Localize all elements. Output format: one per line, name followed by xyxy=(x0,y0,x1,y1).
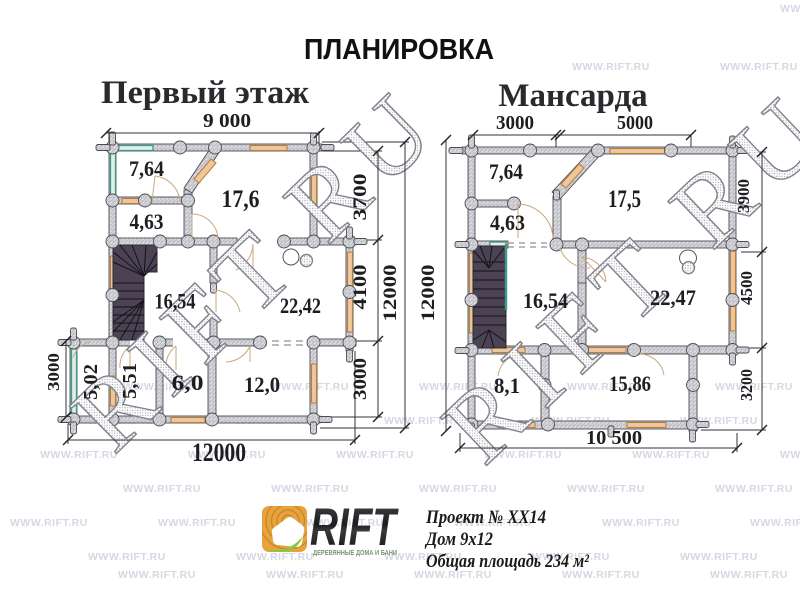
svg-text:3000: 3000 xyxy=(44,353,63,391)
svg-text:12000: 12000 xyxy=(192,438,246,467)
svg-text:WWW.RIFT.RU: WWW.RIFT.RU xyxy=(750,517,800,529)
svg-text:WWW.RIFT.RU: WWW.RIFT.RU xyxy=(40,449,118,461)
svg-text:5,51: 5,51 xyxy=(119,363,141,399)
svg-text:22,47: 22,47 xyxy=(650,285,696,310)
svg-text:ДЕРЕВЯННЫЕ ДОМА И БАНИ: ДЕРЕВЯННЫЕ ДОМА И БАНИ xyxy=(313,550,397,557)
svg-text:WWW.RIFT.RU: WWW.RIFT.RU xyxy=(123,483,201,495)
svg-text:16,54: 16,54 xyxy=(523,288,568,313)
svg-text:WWW.RIFT.RU: WWW.RIFT.RU xyxy=(271,483,349,495)
svg-text:WWW.RIFT.RU: WWW.RIFT.RU xyxy=(118,569,196,581)
svg-text:4,63: 4,63 xyxy=(490,210,525,235)
svg-text:16,54: 16,54 xyxy=(155,289,196,314)
svg-text:17,6: 17,6 xyxy=(222,186,260,213)
svg-text:12,0: 12,0 xyxy=(244,372,280,397)
svg-text:WWW.RIFT.RU: WWW.RIFT.RU xyxy=(780,449,800,461)
svg-text:WWW.RIFT.RU: WWW.RIFT.RU xyxy=(567,483,645,495)
svg-text:Проект № ХХ14: Проект № ХХ14 xyxy=(425,507,546,528)
svg-text:ПЛАНИРОВКА: ПЛАНИРОВКА xyxy=(304,34,494,66)
svg-text:3200: 3200 xyxy=(737,369,756,401)
svg-text:3000: 3000 xyxy=(350,358,371,400)
svg-text:WWW.RIFT.RU: WWW.RIFT.RU xyxy=(680,551,758,563)
svg-text:6,0: 6,0 xyxy=(172,370,204,395)
svg-text:7,64: 7,64 xyxy=(489,159,523,184)
svg-text:4,63: 4,63 xyxy=(130,209,164,234)
svg-text:WWW.RIFT.RU: WWW.RIFT.RU xyxy=(632,449,710,461)
svg-text:WWW.RIFT.RU: WWW.RIFT.RU xyxy=(572,61,650,73)
svg-text:Дом 9х12: Дом 9х12 xyxy=(424,529,493,550)
svg-text:WWW.RIFT.RU: WWW.RIFT.RU xyxy=(715,483,793,495)
svg-text:5000: 5000 xyxy=(617,112,653,134)
svg-text:WWW.RIFT.RU: WWW.RIFT.RU xyxy=(266,569,344,581)
svg-text:4500: 4500 xyxy=(737,271,756,305)
svg-text:3700: 3700 xyxy=(350,174,371,221)
svg-text:WWW.RIFT.RU: WWW.RIFT.RU xyxy=(158,517,236,529)
svg-text:7,64: 7,64 xyxy=(129,156,164,181)
svg-text:5,02: 5,02 xyxy=(80,364,102,400)
svg-text:12000: 12000 xyxy=(418,265,439,322)
svg-text:WWW.RIFT.RU: WWW.RIFT.RU xyxy=(419,483,497,495)
svg-text:15,86: 15,86 xyxy=(609,371,651,396)
svg-text:4100: 4100 xyxy=(350,265,371,310)
svg-text:WWW.RIFT.RU: WWW.RIFT.RU xyxy=(88,551,166,563)
svg-text:12000: 12000 xyxy=(380,265,401,322)
svg-text:22,42: 22,42 xyxy=(280,293,321,318)
svg-text:Общая площадь 234 м²: Общая площадь 234 м² xyxy=(426,551,590,572)
svg-text:WWW.RIFT.RU: WWW.RIFT.RU xyxy=(602,517,680,529)
svg-text:WWW.RIFT.RU: WWW.RIFT.RU xyxy=(720,61,798,73)
svg-text:10 500: 10 500 xyxy=(586,427,642,449)
svg-text:WWW.RIFT.RU: WWW.RIFT.RU xyxy=(236,551,314,563)
svg-text:8,1: 8,1 xyxy=(494,373,520,398)
svg-text:Первый этаж: Первый этаж xyxy=(101,75,309,111)
svg-text:9 000: 9 000 xyxy=(203,110,251,132)
svg-text:Мансарда: Мансарда xyxy=(498,78,647,114)
svg-text:3000: 3000 xyxy=(496,112,534,134)
svg-text:RIFT: RIFT xyxy=(310,498,399,557)
svg-text:WWW.RIFT.RU: WWW.RIFT.RU xyxy=(710,569,788,581)
svg-text:3900: 3900 xyxy=(734,179,753,213)
svg-text:WWW.RIFT.RU: WWW.RIFT.RU xyxy=(336,449,414,461)
svg-text:WWW.RIFT.RU: WWW.RIFT.RU xyxy=(10,517,88,529)
svg-text:WWW.RIFT.RU: WWW.RIFT.RU xyxy=(780,3,800,15)
svg-text:17,5: 17,5 xyxy=(608,186,641,213)
